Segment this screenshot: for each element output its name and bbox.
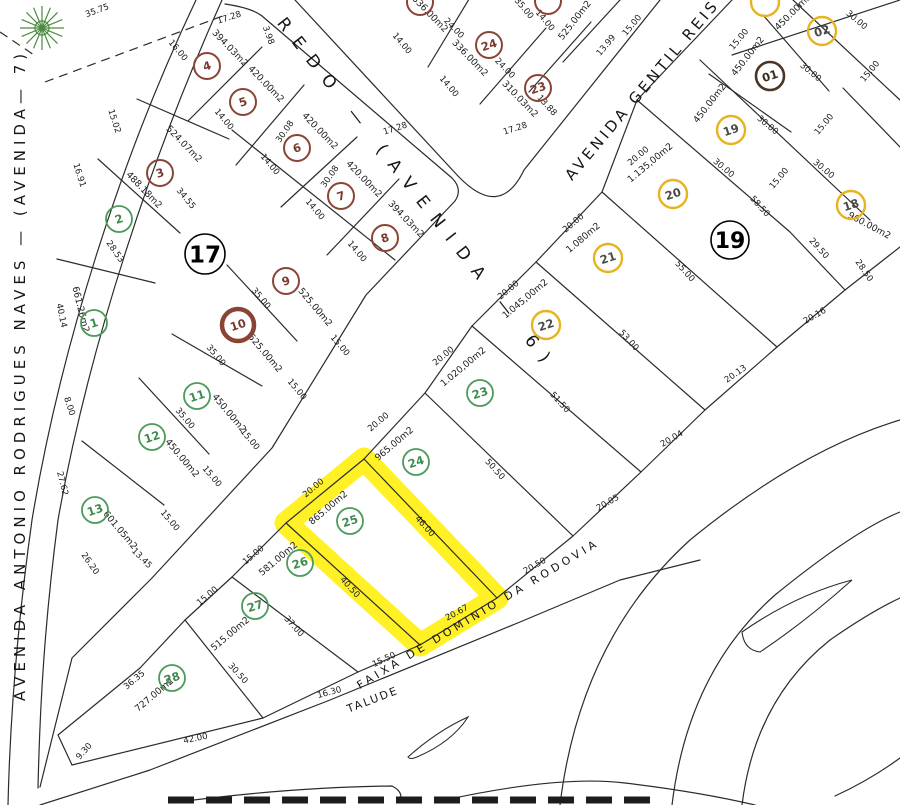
- dimension-label: 20.00: [431, 345, 456, 368]
- area-label: 420.00m2: [300, 111, 341, 152]
- dimension-label: 13.99: [595, 33, 618, 58]
- dimension-label: 14.00: [212, 107, 235, 132]
- map-line: [843, 88, 900, 147]
- svg-text:21: 21: [598, 249, 618, 267]
- dimension-label: 51.50: [548, 390, 572, 415]
- svg-text:11: 11: [187, 387, 207, 405]
- dimension-label: 15.00: [328, 333, 351, 358]
- dimension-label: 26.20: [78, 551, 100, 577]
- dimension-label: 30.50: [226, 661, 250, 686]
- svg-text:8: 8: [379, 230, 391, 246]
- dimension-label: 50.50: [483, 457, 507, 482]
- area-label: 661.26m2: [69, 285, 91, 333]
- lot-marker-2: 2: [106, 206, 132, 232]
- lot-boundary: [57, 259, 155, 283]
- lot-marker-24: 24: [403, 449, 429, 475]
- dimension-label: 30.08: [319, 164, 341, 190]
- dimension-label: 3.98: [260, 25, 276, 46]
- svg-text:3: 3: [154, 165, 166, 181]
- plat-map: 35.7517.283.9816.0014.0014.0014.0014.001…: [0, 0, 900, 805]
- dimension-label: 40.14: [54, 303, 69, 329]
- lot-marker-6: 6: [284, 135, 310, 161]
- dimension-label: 37.00: [282, 614, 306, 639]
- dimension-label: 15.00: [768, 166, 791, 191]
- dimension-label: 8.00: [61, 396, 76, 417]
- dimension-label: 35.00: [512, 0, 535, 21]
- dimension-label: 34.55: [174, 186, 197, 211]
- dimension-label: 16.91: [70, 162, 87, 188]
- map-line: [672, 512, 900, 805]
- area-label: 525.00m2: [296, 286, 335, 329]
- street-label-talude: TALUDE: [344, 684, 400, 716]
- svg-text:28: 28: [162, 669, 182, 687]
- dimension-label: 20.05: [595, 493, 621, 514]
- svg-text:01: 01: [760, 67, 780, 85]
- dimension-label: 15.00: [195, 585, 220, 608]
- dimension-label: 17.28: [382, 121, 408, 138]
- lot-boundary: [188, 47, 262, 121]
- dimension-label: 15.02: [105, 108, 122, 134]
- block-label-19: 19: [711, 221, 749, 259]
- svg-text:5: 5: [237, 94, 249, 110]
- dimension-label: 15.00: [813, 112, 836, 137]
- lot-marker-4: 4: [194, 53, 220, 79]
- dimension-label: 30.00: [755, 114, 780, 137]
- lot-marker-27: 27: [242, 593, 268, 619]
- dimension-label: 35.00: [204, 343, 227, 368]
- svg-text:24: 24: [406, 453, 426, 471]
- dimension-label: 30.00: [844, 9, 869, 32]
- dimension-label: 17.28: [502, 121, 528, 138]
- dimension-label: 29.50: [807, 236, 831, 261]
- area-label: 336.00m2: [410, 0, 451, 35]
- svg-text:6: 6: [291, 140, 303, 156]
- svg-text:02: 02: [812, 22, 832, 40]
- lot-marker: [751, 0, 779, 16]
- svg-text:17: 17: [189, 242, 221, 268]
- lot-marker-5: 5: [230, 89, 256, 115]
- dimension-label: 30.00: [711, 157, 736, 180]
- svg-text:19: 19: [715, 229, 746, 254]
- traffic-island: [408, 717, 468, 759]
- area-label: 525.00m2: [556, 0, 594, 42]
- lot-boundary: [98, 159, 180, 233]
- dimension-label: 15.00: [158, 508, 181, 533]
- dimension-label: 9.30: [74, 741, 94, 762]
- svg-text:23: 23: [528, 79, 548, 97]
- dimension-label: 35.75: [84, 2, 111, 20]
- dimension-label: 17.28: [216, 10, 242, 27]
- lot-marker-26: 26: [287, 550, 313, 576]
- lot-marker-21: 21: [594, 244, 622, 272]
- plat-map-page: 35.7517.283.9816.0014.0014.0014.0014.001…: [0, 0, 900, 805]
- lot-marker-3: 3: [147, 160, 173, 186]
- svg-text:18: 18: [841, 196, 861, 214]
- street-label-avenida-7: AVENIDA ANTONIO RODRIGUES NAVES — (AVENI…: [11, 49, 29, 701]
- dimension-label: 15.00: [241, 544, 266, 567]
- dimension-label: 42.00: [183, 732, 209, 747]
- dimension-label: 53.00: [617, 328, 641, 353]
- area-label: 525.00m2: [246, 332, 285, 375]
- lot-marker-22: 22: [532, 311, 560, 339]
- dimension-label: 15.00: [200, 464, 223, 489]
- lot-marker-20: 20: [659, 180, 687, 208]
- svg-text:10: 10: [228, 316, 248, 334]
- lot-marker-02: 02: [808, 17, 836, 45]
- dimension-label: 14.00: [437, 74, 460, 99]
- svg-text:23: 23: [470, 384, 490, 402]
- svg-text:24: 24: [479, 36, 499, 54]
- lot-marker-24: 24: [476, 32, 502, 58]
- area-label: 394.03m2: [210, 28, 251, 69]
- dimension-label: 24.00: [492, 56, 516, 81]
- lot-marker-7: 7: [328, 183, 354, 209]
- map-line: [835, 758, 900, 796]
- map-line: [560, 420, 900, 805]
- area-label: 450.00m2: [210, 392, 249, 435]
- area-label: 450.00m2: [163, 437, 202, 480]
- street-label-avenida-6: REDO — (AVENIDA — 6): [272, 14, 561, 376]
- svg-text:2: 2: [113, 211, 125, 227]
- dimension-label: 30.00: [811, 158, 836, 181]
- lot-marker-11: 11: [184, 383, 210, 409]
- dimension-label: 20.04: [659, 429, 685, 450]
- dimension-label: 14.00: [345, 239, 368, 264]
- svg-text:7: 7: [335, 188, 347, 204]
- lot-boundary: [137, 99, 229, 139]
- svg-text:12: 12: [142, 428, 162, 446]
- dimension-label: 16.30: [316, 685, 342, 701]
- svg-text:9: 9: [280, 273, 292, 289]
- area-label: 960.00m2: [846, 210, 893, 242]
- area-label: 524.07m2: [164, 124, 205, 165]
- lot-marker-9: 9: [273, 268, 299, 294]
- dimension-label: 20.16: [802, 306, 828, 327]
- lot-marker-12: 12: [139, 424, 165, 450]
- dimension-label: 27.62: [54, 470, 70, 496]
- traffic-island: [742, 580, 852, 652]
- dimension-label: 14.00: [390, 31, 413, 56]
- dimension-label: 14.00: [303, 197, 326, 222]
- lot-marker-8: 8: [372, 225, 398, 251]
- svg-text:20: 20: [663, 185, 683, 203]
- map-line: [72, 247, 900, 765]
- dimension-label: 28.53: [103, 239, 125, 265]
- lot-marker-19: 19: [717, 116, 745, 144]
- dimension-label: 20.00: [366, 411, 391, 434]
- lot-marker-10: 10: [222, 309, 254, 341]
- dimension-label: 30.00: [798, 61, 823, 84]
- svg-text:4: 4: [201, 58, 213, 74]
- dimension-label: 15.00: [285, 377, 308, 402]
- lot-marker-13: 13: [82, 497, 108, 523]
- lot-marker-25: 25: [337, 508, 363, 534]
- lot-marker-23: 23: [467, 380, 493, 406]
- svg-text:25: 25: [340, 512, 360, 530]
- dimension-label: 35.00: [249, 286, 272, 311]
- area-label: 420.00m2: [344, 159, 385, 200]
- dimension-label: 28.50: [852, 258, 874, 284]
- dimension-label: 14.00: [258, 152, 281, 177]
- dimension-label: 58.50: [748, 194, 772, 219]
- lot-marker-01: 01: [756, 62, 784, 90]
- dimension-label: 55.00: [673, 259, 697, 284]
- svg-text:19: 19: [721, 121, 741, 139]
- svg-text:22: 22: [536, 316, 556, 334]
- tree-icon: [20, 6, 64, 50]
- area-label: 420.00m2: [246, 64, 287, 105]
- map-line: [700, 60, 870, 220]
- area-label: 515.00m2: [209, 615, 252, 654]
- lot-boundary: [425, 393, 573, 536]
- block-label-17: 17: [185, 234, 225, 274]
